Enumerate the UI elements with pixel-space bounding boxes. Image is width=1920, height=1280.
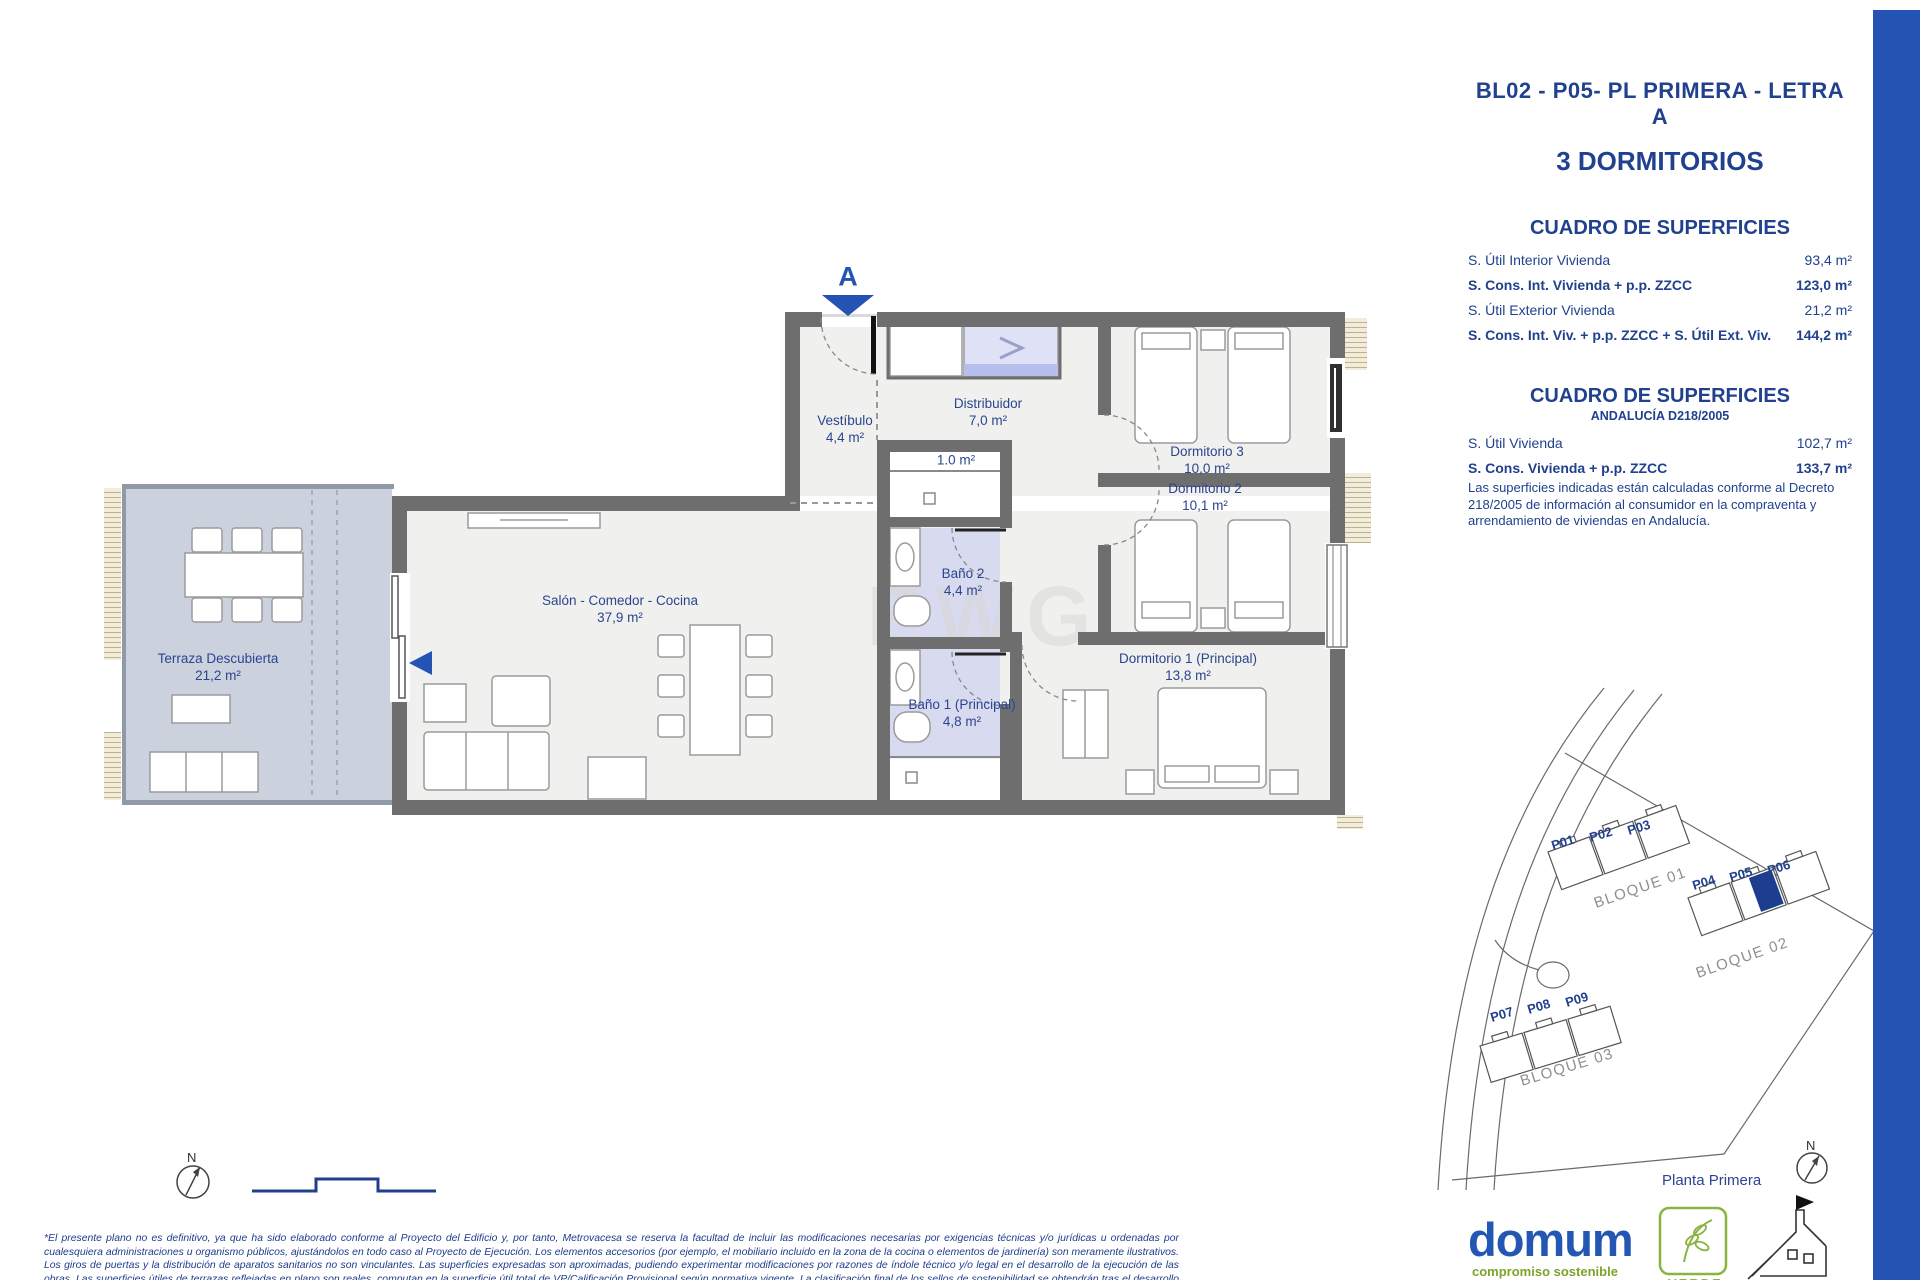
room-label-distribuidor: Distribuidor7,0 m²: [954, 396, 1022, 430]
surfaces-table-2-title: CUADRO DE SUPERFICIES: [1468, 385, 1852, 408]
brand-logo-text: domum: [1468, 1212, 1633, 1267]
unit-label-p08: P08: [1525, 996, 1552, 1017]
accent-side-bar: [1873, 10, 1920, 1280]
plan-code: BL02 - P05- PL PRIMERA - LETRA A: [1468, 78, 1852, 130]
room-label-dormitorio-3: Dormitorio 310,0 m²: [1170, 444, 1244, 478]
north-label-right: N: [1806, 1138, 1815, 1153]
room-label-bano-1: Baño 1 (Principal)4,8 m²: [908, 697, 1015, 731]
surfaces-table-2: S. Útil Vivienda102,7 m² S. Cons. Vivien…: [1468, 435, 1852, 476]
brand-tagline: compromiso sostenible: [1472, 1264, 1618, 1279]
block-label-02: BLOQUE 02: [1694, 934, 1791, 982]
floor-level-label: Planta Primera: [1662, 1172, 1761, 1189]
room-label-vestibulo: Vestíbulo4,4 m²: [817, 413, 873, 447]
north-compass-left: [177, 1166, 209, 1198]
table-row: S. Cons. Vivienda + p.p. ZZCC133,7 m²: [1468, 460, 1852, 476]
table-row: S. Cons. Int. Viv. + p.p. ZZCC + S. Útil…: [1468, 327, 1852, 343]
room-label-dormitorio-2: Dormitorio 210,1 m²: [1168, 481, 1242, 515]
verde-cert-icon: [1660, 1208, 1726, 1274]
room-label-terraza: Terraza Descubierta21,2 m²: [158, 651, 279, 685]
unit-label-p07: P07: [1488, 1004, 1515, 1025]
legal-disclaimer: *El presente plano no es definitivo, ya …: [44, 1232, 1179, 1280]
surfaces-table-1: S. Útil Interior Vivienda93,4 m² S. Cons…: [1468, 252, 1852, 343]
north-compass-right: [1797, 1153, 1827, 1183]
room-label-closet: 1.0 m²: [937, 453, 975, 470]
table-row: S. Útil Interior Vivienda93,4 m²: [1468, 252, 1852, 268]
surfaces-panel: BL02 - P05- PL PRIMERA - LETRA A 3 DORMI…: [1468, 78, 1852, 530]
table-row: S. Cons. Int. Vivienda + p.p. ZZCC123,0 …: [1468, 277, 1852, 293]
house-logo-icon: [1748, 1195, 1826, 1279]
room-label-bano-2: Baño 24,4 m²: [942, 566, 985, 600]
entrance-label: A: [838, 262, 858, 293]
decree-note: Las superficies indicadas están calculad…: [1468, 480, 1852, 530]
site-plan: [1438, 688, 1874, 1190]
north-label-left: N: [187, 1150, 196, 1165]
room-label-salon: Salón - Comedor - Cocina37,9 m²: [542, 593, 698, 627]
plan-sheet: EWG: [0, 0, 1920, 1280]
dwelling-type: 3 DORMITORIOS: [1468, 146, 1852, 177]
surfaces-table-2-subtitle: ANDALUCÍA D218/2005: [1468, 409, 1852, 423]
surfaces-table-1-title: CUADRO DE SUPERFICIES: [1468, 217, 1852, 240]
room-label-dormitorio-1: Dormitorio 1 (Principal)13,8 m²: [1119, 651, 1257, 685]
table-row: S. Útil Vivienda102,7 m²: [1468, 435, 1852, 451]
table-row: S. Útil Exterior Vivienda21,2 m²: [1468, 302, 1852, 318]
verde-cert-label: VERDE: [1668, 1276, 1723, 1280]
scale-bar: [252, 1179, 436, 1191]
